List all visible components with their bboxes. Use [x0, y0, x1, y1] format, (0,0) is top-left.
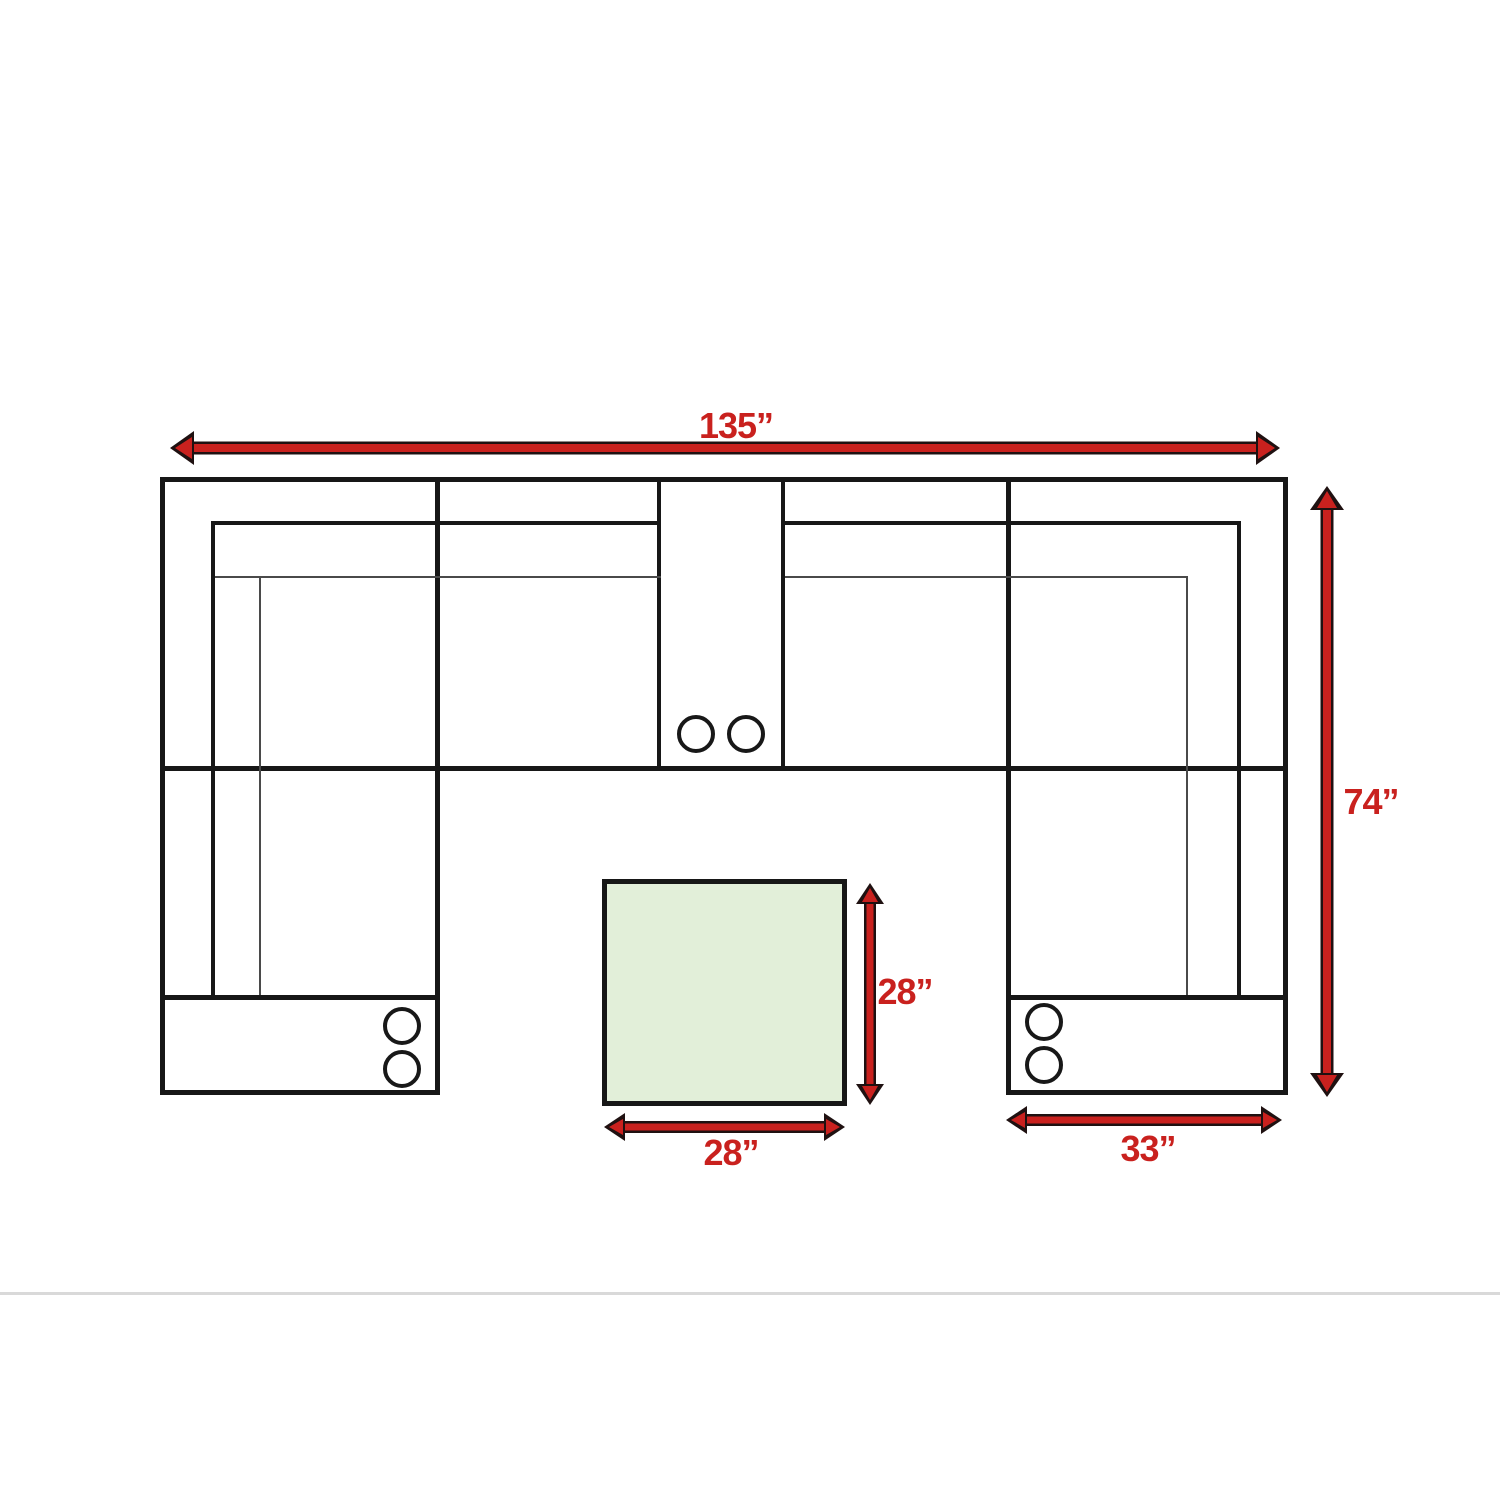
total-depth-arrow	[1310, 486, 1344, 1097]
sectional-sofa-floor-plan: 135” 74” 28” 28” 33”	[0, 0, 1500, 1500]
dimension-label-total-depth: 74”	[1343, 784, 1398, 820]
dimension-label-ottoman-width: 28”	[703, 1135, 758, 1171]
page-divider-line	[0, 1292, 1500, 1295]
dimension-label-ottoman-depth: 28”	[877, 974, 932, 1010]
dimension-label-total-width: 135”	[699, 408, 773, 444]
dimension-label-right-chaise-width: 33”	[1120, 1131, 1175, 1167]
dimension-arrows-layer	[0, 0, 1500, 1500]
